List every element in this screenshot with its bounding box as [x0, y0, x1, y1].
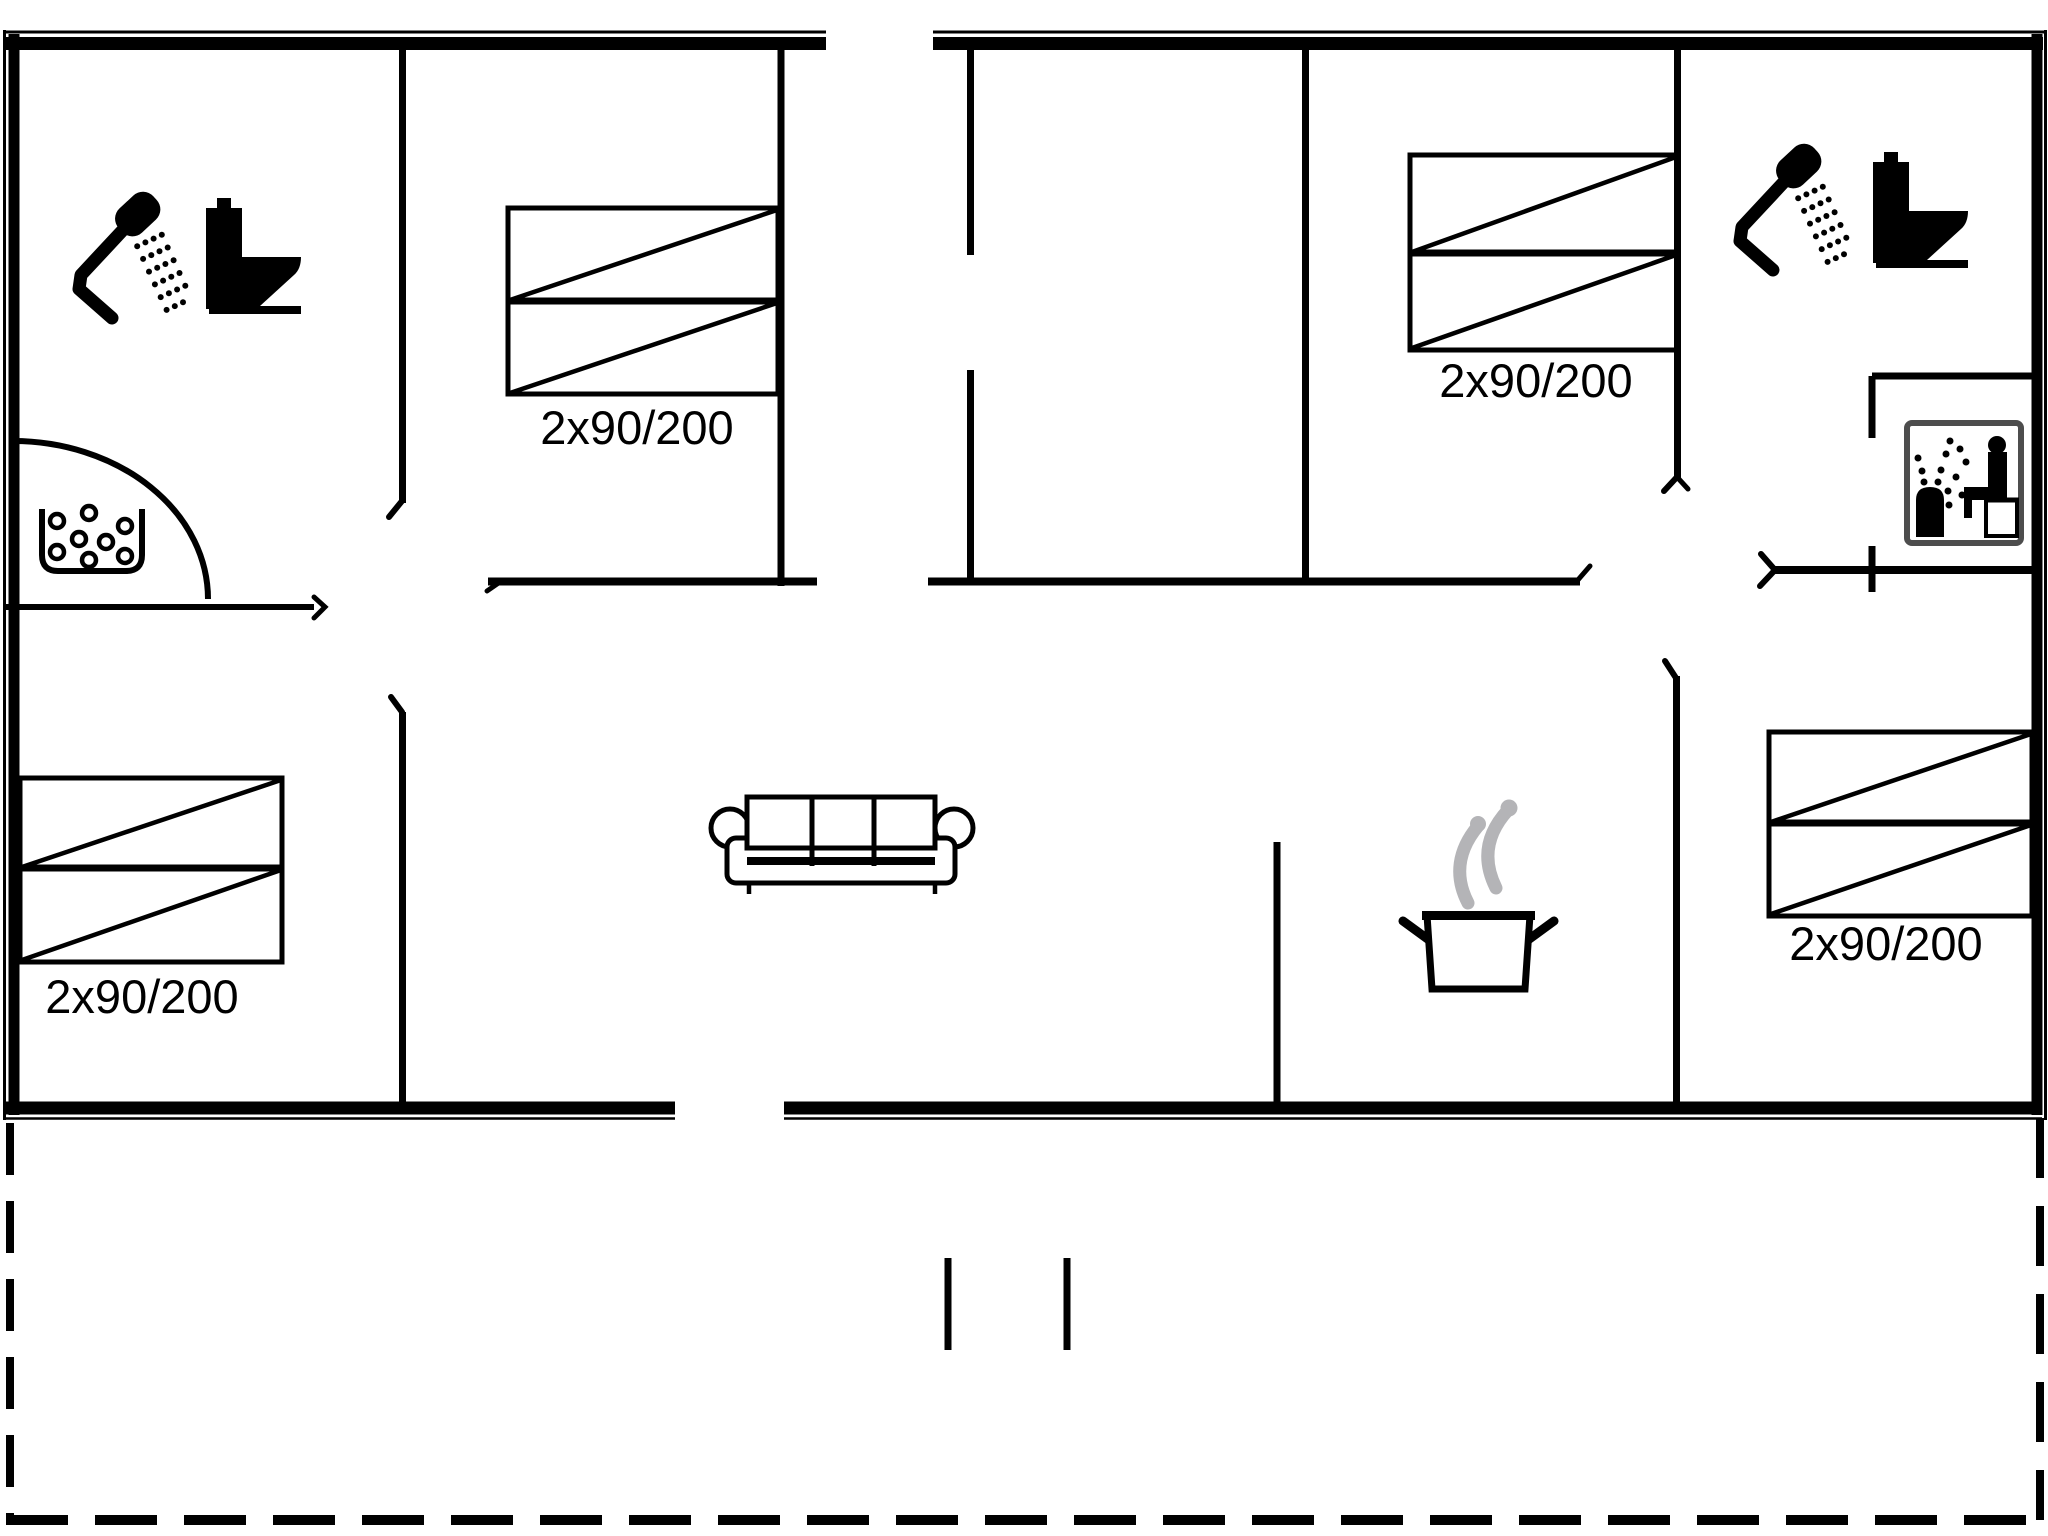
- svg-text:2x90/200: 2x90/200: [1439, 354, 1632, 407]
- svg-text:2x90/200: 2x90/200: [45, 970, 238, 1023]
- svg-text:2x90/200: 2x90/200: [1789, 917, 1982, 970]
- svg-text:2x90/200: 2x90/200: [540, 401, 733, 454]
